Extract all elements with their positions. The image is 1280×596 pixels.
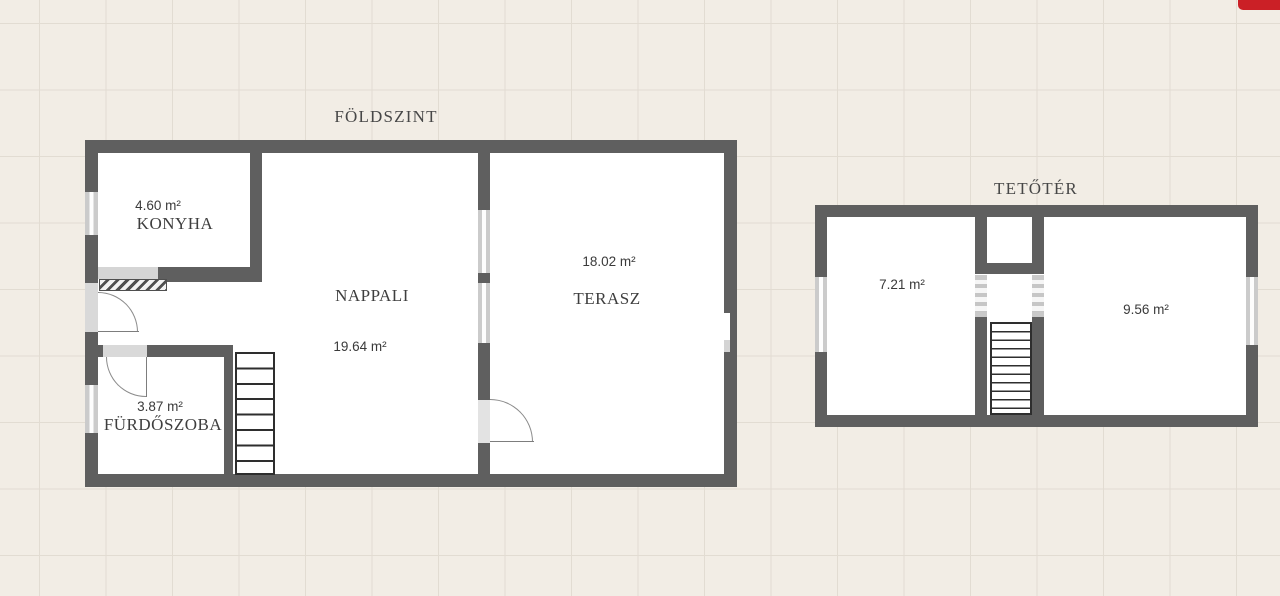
wall-segment (815, 415, 1258, 427)
room-name: KONYHA (137, 214, 214, 234)
wall-segment (1032, 317, 1044, 415)
wall-segment (85, 140, 737, 153)
window-symbol (85, 192, 98, 235)
wall-segment (478, 443, 490, 474)
attic-title: TETŐTÉR (994, 179, 1078, 199)
wall-segment (1032, 217, 1044, 274)
wall-segment (987, 263, 1032, 274)
attic-plan[interactable]: 7.21 m² 9.56 m² (815, 205, 1258, 427)
wall-segment (815, 352, 827, 415)
room-area: 19.64 m² (333, 339, 386, 354)
window-symbol (815, 277, 827, 352)
wall-segment (158, 267, 262, 282)
door-leaf (98, 331, 139, 332)
wall-segment (815, 205, 1258, 217)
floorplan-canvas[interactable]: FÖLDSZINT (0, 0, 1280, 596)
wall-segment (478, 343, 490, 400)
room-area: 7.21 m² (879, 277, 925, 292)
wall-segment (250, 153, 262, 282)
bathroom-door-opening (103, 345, 147, 357)
door-marker (1032, 275, 1044, 317)
door-leaf (490, 441, 534, 442)
room-area: 9.56 m² (1123, 302, 1169, 317)
wall-segment (147, 345, 233, 357)
room-area: 18.02 m² (582, 254, 635, 269)
wall-segment (85, 433, 98, 487)
wall-segment (815, 205, 827, 277)
wall-segment (224, 345, 233, 474)
door-leaf (146, 357, 147, 397)
kitchen-passthrough (98, 267, 158, 279)
stairs-symbol (990, 322, 1032, 415)
terrace-door-opening (478, 400, 490, 443)
ground-floor-title: FÖLDSZINT (334, 107, 437, 127)
ground-floor-plan[interactable]: 4.60 m² KONYHA NAPPALI 19.64 m² 18.02 m²… (85, 140, 737, 487)
room-name: FÜRDŐSZOBA (104, 415, 222, 435)
room-name: NAPPALI (335, 286, 409, 306)
wall-segment (1246, 345, 1258, 415)
wall-segment (478, 273, 490, 283)
wall-segment (975, 217, 987, 274)
room-area: 4.60 m² (135, 198, 181, 213)
window-symbol (478, 283, 490, 343)
door-swing-arc (490, 399, 533, 442)
red-button[interactable] (1238, 0, 1280, 10)
wall-segment (975, 317, 987, 415)
wall-segment (85, 332, 98, 385)
entrance-door-opening (85, 283, 98, 332)
wall-segment (478, 153, 490, 210)
room-area: 3.87 m² (137, 399, 183, 414)
wall-segment (85, 140, 98, 192)
window-symbol (1246, 277, 1258, 345)
window-symbol (478, 210, 490, 273)
window-symbol (85, 385, 98, 433)
stairs-symbol (235, 352, 275, 475)
hatch-symbol (99, 279, 167, 291)
wall-segment (1246, 205, 1258, 277)
room-name: TERASZ (573, 289, 640, 309)
wall-notch-sill (724, 340, 730, 352)
door-marker (975, 275, 987, 317)
door-swing-arc (98, 292, 138, 332)
door-swing-arc (106, 357, 146, 397)
wall-segment (85, 474, 737, 487)
wall-segment (85, 235, 98, 283)
